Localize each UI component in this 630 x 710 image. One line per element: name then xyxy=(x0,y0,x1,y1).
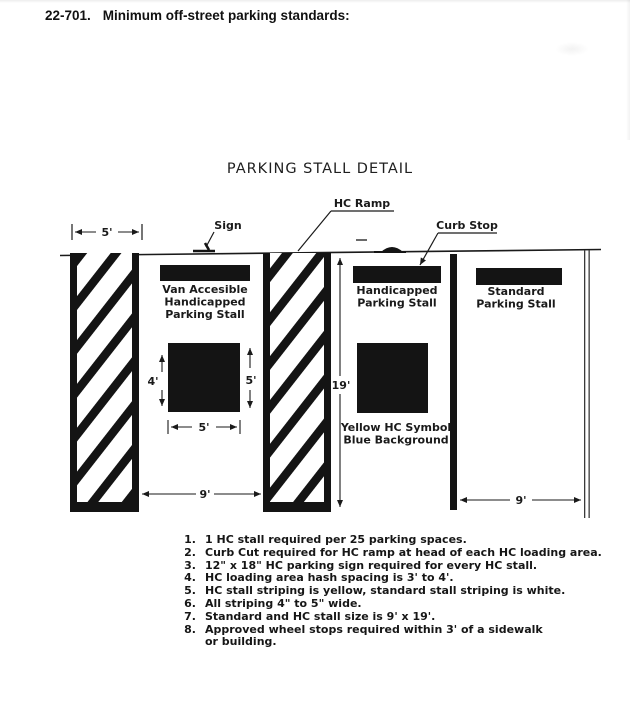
dim-loading-area-width: 5' xyxy=(72,224,142,240)
hc-stall-curb-stop-bar xyxy=(353,266,441,283)
note-number: 8. xyxy=(184,624,196,650)
sign-symbol xyxy=(205,243,209,250)
label-line: Parking Stall xyxy=(476,298,555,311)
parking-stall-diagram: Sign HC Ramp Curb Stop 5' 4' xyxy=(0,0,630,530)
stripe-border xyxy=(132,253,139,512)
hc-ramp-callout-label: HC Ramp xyxy=(334,197,390,210)
dim-symbol-height: 4' xyxy=(147,355,162,406)
note-item: 7.Standard and HC stall size is 9' x 19'… xyxy=(184,611,624,624)
label-line: Parking Stall xyxy=(165,308,244,321)
dim-label: 5' xyxy=(198,421,209,434)
label-line: Blue Background xyxy=(343,434,448,447)
dim-label: 5' xyxy=(245,374,256,387)
dim-standard-stall-width: 9' xyxy=(460,494,581,507)
stripe-border xyxy=(70,502,139,512)
van-stall-sign-bar xyxy=(160,265,250,281)
notes-list: 1.1 HC stall required per 25 parking spa… xyxy=(184,534,624,649)
note-item: 6.All striping 4" to 5" wide. xyxy=(184,598,624,611)
hc-ramp-leader-line xyxy=(298,211,331,251)
note-item: 1.1 HC stall required per 25 parking spa… xyxy=(184,534,624,547)
note-item: 8. Approved wheel stops required within … xyxy=(184,624,624,650)
dim-label: 5' xyxy=(101,226,112,239)
dim-label: 4' xyxy=(147,375,158,388)
stripe-border xyxy=(324,253,331,512)
standard-stall-label: Standard Parking Stall xyxy=(476,285,555,311)
standard-stall-curb-stop-bar xyxy=(476,268,562,285)
standard-stall-stripe xyxy=(589,250,590,518)
dim-label: 19' xyxy=(332,379,351,392)
note-number: 6. xyxy=(184,598,196,611)
note-text: Approved wheel stops required within 3' … xyxy=(205,624,543,650)
label-line: Parking Stall xyxy=(357,297,436,310)
dim-symbol-side: 5' xyxy=(245,348,256,408)
hc-symbol-square-van xyxy=(168,343,240,412)
hc-loading-area-left xyxy=(70,253,139,512)
hc-stall-stripe xyxy=(450,254,457,510)
curb-stop-callout-label: Curb Stop xyxy=(436,219,498,232)
note-text: All striping 4" to 5" wide. xyxy=(205,598,362,611)
stripe-border xyxy=(263,253,270,512)
note-text: 1 HC stall required per 25 parking space… xyxy=(205,534,467,547)
hc-symbol-note-label: Yellow HC Symbol Blue Background xyxy=(340,421,451,447)
sign-callout-label: Sign xyxy=(214,219,241,232)
label-line: Handicapped xyxy=(356,284,437,297)
label-line: Van Accesible xyxy=(162,283,247,296)
standard-stall-stripe xyxy=(584,250,585,518)
hatch-striping xyxy=(77,253,132,503)
label-line: Standard xyxy=(487,285,544,298)
hc-loading-area-middle xyxy=(263,253,331,512)
dim-hc-stall-width: 9' xyxy=(142,488,261,501)
curb-stop-leader-line xyxy=(420,233,438,265)
hatch-striping xyxy=(270,253,324,503)
dim-label: 9' xyxy=(199,488,210,501)
stripe-border xyxy=(70,253,77,512)
note-item: 2.Curb Cut required for HC ramp at head … xyxy=(184,547,624,560)
note-number: 2. xyxy=(184,547,196,560)
label-line: Yellow HC Symbol xyxy=(340,421,451,434)
note-text: Curb Cut required for HC ramp at head of… xyxy=(205,547,602,560)
note-number: 1. xyxy=(184,534,196,547)
van-accessible-stall-label: Van Accesible Handicapped Parking Stall xyxy=(162,283,247,321)
stripe-border xyxy=(263,502,331,512)
hc-symbol-square-hc xyxy=(357,343,428,413)
handicapped-stall-label: Handicapped Parking Stall xyxy=(356,284,437,310)
note-text: Standard and HC stall size is 9' x 19'. xyxy=(205,611,435,624)
dim-label: 9' xyxy=(515,494,526,507)
scanned-document-page: 22-701.Minimum off-street parking standa… xyxy=(0,0,630,710)
label-line: Handicapped xyxy=(164,296,245,309)
note-text-line: or building. xyxy=(205,636,543,649)
dim-symbol-width: 5' xyxy=(168,420,240,434)
note-number: 7. xyxy=(184,611,196,624)
dim-stall-depth: 19' xyxy=(332,258,351,507)
